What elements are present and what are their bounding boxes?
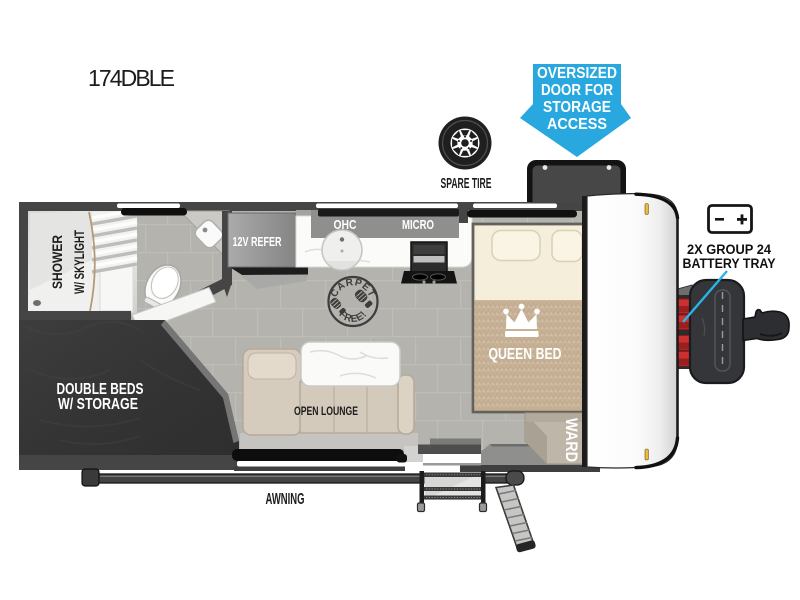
svg-text:OPEN LOUNGE: OPEN LOUNGE xyxy=(294,404,358,418)
svg-text:ACCESS: ACCESS xyxy=(547,116,607,133)
svg-text:BATTERY TRAY: BATTERY TRAY xyxy=(683,256,776,271)
svg-text:AWNING: AWNING xyxy=(266,491,305,508)
svg-text:174DBLE: 174DBLE xyxy=(88,65,175,91)
svg-text:W/ SKYLIGHT: W/ SKYLIGHT xyxy=(71,230,87,294)
svg-text:W/ STORAGE: W/ STORAGE xyxy=(58,396,138,413)
svg-text:STORAGE: STORAGE xyxy=(543,99,611,116)
svg-text:QUEEN BED: QUEEN BED xyxy=(489,346,562,363)
svg-text:12V REFER: 12V REFER xyxy=(233,234,282,249)
svg-text:SHOWER: SHOWER xyxy=(49,235,65,289)
svg-text:WARD: WARD xyxy=(562,418,580,462)
svg-text:OVERSIZED: OVERSIZED xyxy=(537,65,617,82)
svg-text:MICRO: MICRO xyxy=(402,218,434,232)
svg-text:DOOR FOR: DOOR FOR xyxy=(541,82,613,99)
svg-text:2X GROUP 24: 2X GROUP 24 xyxy=(687,242,771,257)
svg-text:SPARE TIRE: SPARE TIRE xyxy=(441,175,492,192)
